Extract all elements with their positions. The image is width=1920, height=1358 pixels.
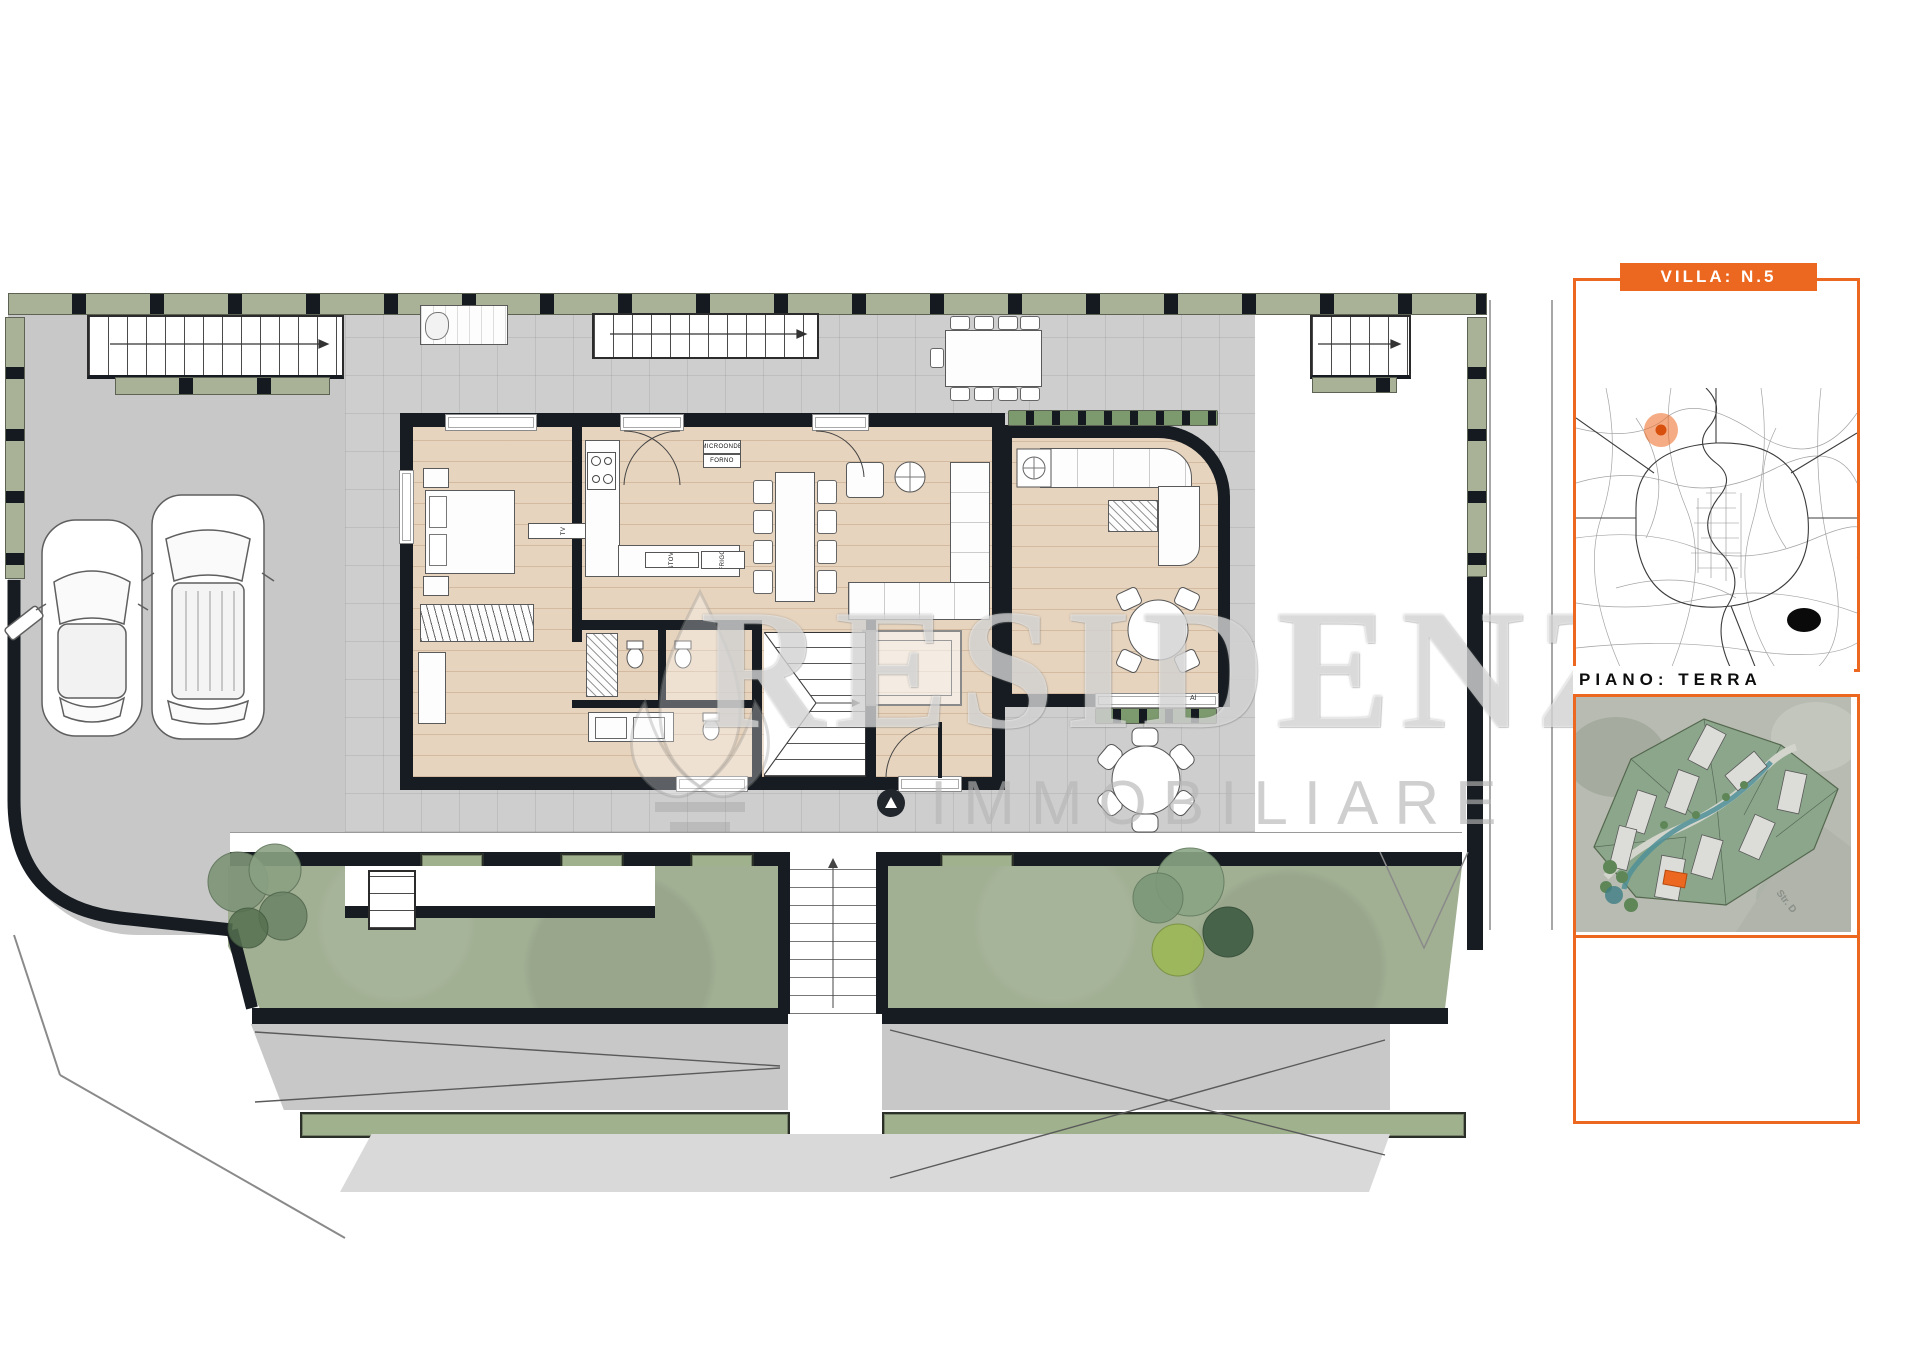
watermark-subtitle: IMMOBILIARE (930, 768, 1513, 839)
floorplan-sheet: Al TV MICROONDE FORNO LAVASTOVIGLIE FRIG… (0, 0, 1920, 1358)
car-sedan (4, 520, 148, 736)
panel-location-box (1573, 278, 1860, 672)
car-suv (142, 495, 274, 739)
floor-label-band: PIANO: TERRA (1573, 666, 1854, 694)
city-map (1576, 388, 1857, 669)
panel-empty-box (1573, 935, 1860, 1124)
villa-banner: VILLA: N.5 (1620, 263, 1817, 291)
floor-label: PIANO: TERRA (1579, 670, 1762, 690)
panel-siteplan-box: Str. D (1573, 694, 1860, 941)
map-marker-dot (1656, 425, 1667, 436)
site-plan-aerial: Str. D (1576, 697, 1851, 932)
tree-cluster-right (1133, 848, 1253, 976)
villa-banner-label: VILLA: N.5 (1661, 267, 1777, 287)
